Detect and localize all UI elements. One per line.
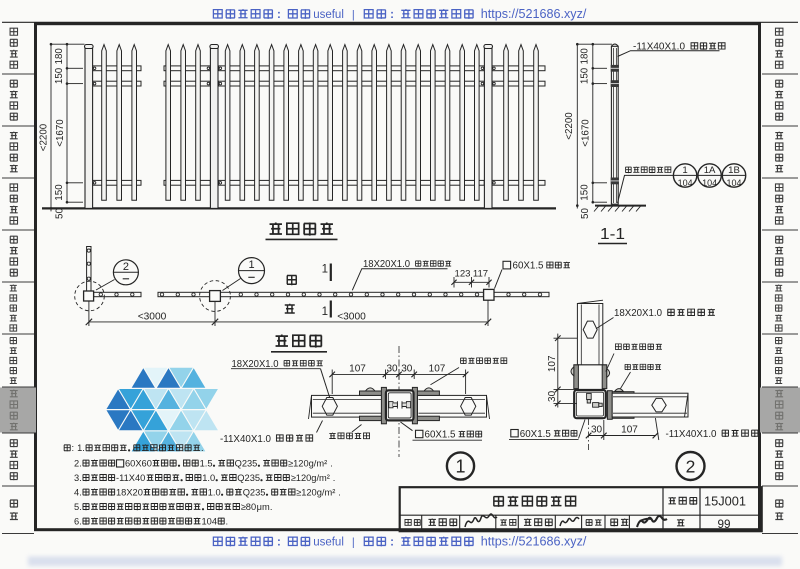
svg-text:18X20X1.0: 18X20X1.0	[614, 308, 662, 319]
svg-text:https://521686.xyz/: https://521686.xyz/	[481, 7, 587, 21]
svg-text:150: 150	[54, 67, 65, 84]
svg-text:150: 150	[580, 67, 591, 84]
svg-text:60X1.5: 60X1.5	[425, 430, 456, 441]
svg-text:<1670: <1670	[55, 119, 66, 147]
svg-text:1: 1	[322, 306, 328, 318]
svg-text:123: 123	[454, 268, 470, 279]
svg-text:useful: useful	[313, 9, 344, 21]
svg-text:150: 150	[580, 184, 591, 201]
svg-text:1: 1	[248, 259, 254, 271]
svg-text:30: 30	[547, 390, 558, 402]
svg-text:50: 50	[580, 208, 591, 219]
svg-text:|: |	[352, 537, 355, 549]
svg-text:-11X40X1.0: -11X40X1.0	[220, 434, 271, 445]
svg-text:≥120g/m²: ≥120g/m²	[296, 487, 335, 497]
svg-text:<2200: <2200	[39, 123, 50, 151]
svg-text::: :	[277, 9, 281, 21]
svg-text:180: 180	[54, 48, 65, 65]
svg-text::: :	[390, 9, 394, 21]
svg-text:.: .	[338, 487, 341, 497]
svg-text:-11X40X1.0: -11X40X1.0	[633, 41, 685, 53]
svg-text:.: .	[333, 473, 336, 483]
svg-text:30: 30	[591, 425, 603, 436]
svg-text:180: 180	[580, 48, 591, 65]
svg-text:2: 2	[123, 261, 129, 273]
svg-text:≥80: ≥80	[241, 502, 256, 512]
svg-text:Q235: Q235	[237, 473, 260, 483]
svg-text:.: .	[270, 502, 273, 512]
svg-text:|: |	[352, 9, 355, 21]
svg-text:.: .	[201, 443, 204, 453]
svg-text:4.: 4.	[74, 487, 82, 497]
svg-text:.: .	[226, 516, 229, 526]
svg-text:-11X40: -11X40	[116, 473, 145, 483]
svg-text:2: 2	[686, 456, 696, 476]
svg-text:150: 150	[54, 184, 65, 201]
svg-text:Q235: Q235	[235, 458, 258, 468]
svg-text:1.0: 1.0	[208, 487, 221, 497]
svg-text:18X20: 18X20	[116, 487, 143, 497]
svg-text:18X20X1.0: 18X20X1.0	[232, 359, 279, 370]
svg-text:5.: 5.	[74, 502, 82, 512]
svg-text:https://521686.xyz/: https://521686.xyz/	[481, 535, 587, 549]
svg-text:1-1: 1-1	[600, 226, 625, 243]
svg-text:≥120g/m²: ≥120g/m²	[291, 473, 330, 483]
svg-text:104: 104	[678, 178, 693, 188]
svg-text:30: 30	[386, 364, 398, 375]
svg-text::: :	[390, 537, 394, 549]
svg-text:107: 107	[547, 355, 558, 372]
svg-text:117: 117	[473, 268, 488, 279]
svg-text:99: 99	[718, 519, 731, 531]
svg-text:1: 1	[682, 165, 687, 176]
svg-text:useful: useful	[313, 537, 344, 549]
svg-text:18X20X1.0: 18X20X1.0	[363, 259, 410, 270]
svg-text:1.: 1.	[77, 443, 85, 453]
svg-text::: :	[72, 443, 75, 453]
svg-text:-11X40X1.0: -11X40X1.0	[666, 429, 717, 440]
svg-text::: :	[277, 537, 281, 549]
svg-text:2.: 2.	[74, 458, 82, 468]
svg-text:104: 104	[726, 178, 741, 188]
svg-text:104: 104	[702, 178, 717, 188]
svg-text:60X60: 60X60	[125, 458, 152, 468]
svg-text:Q235: Q235	[243, 487, 266, 497]
svg-text:15J001: 15J001	[704, 495, 746, 509]
svg-text:1.0: 1.0	[202, 473, 215, 483]
svg-text:6.: 6.	[74, 516, 82, 526]
svg-text:60X1.5: 60X1.5	[513, 261, 544, 272]
svg-text:1: 1	[322, 264, 328, 276]
svg-text:3.: 3.	[74, 473, 82, 483]
svg-text:60X1.5: 60X1.5	[520, 429, 551, 440]
svg-text:<3000: <3000	[138, 311, 167, 322]
svg-text:1A: 1A	[704, 165, 716, 176]
svg-text:30: 30	[401, 364, 413, 375]
svg-text:<3000: <3000	[337, 311, 366, 322]
svg-text:1.5: 1.5	[200, 458, 213, 468]
svg-text:107: 107	[429, 364, 446, 375]
svg-text:107: 107	[621, 425, 638, 436]
svg-text:104: 104	[202, 516, 218, 526]
svg-text:1: 1	[455, 457, 465, 477]
svg-text:<1670: <1670	[581, 119, 592, 147]
svg-text:107: 107	[349, 364, 366, 375]
svg-text:1B: 1B	[728, 165, 740, 176]
svg-text:.: .	[330, 458, 333, 468]
svg-text:μm: μm	[257, 502, 270, 512]
svg-text:≥120g/m²: ≥120g/m²	[288, 458, 327, 468]
svg-text:50: 50	[55, 208, 66, 219]
svg-text:<2200: <2200	[564, 112, 575, 140]
